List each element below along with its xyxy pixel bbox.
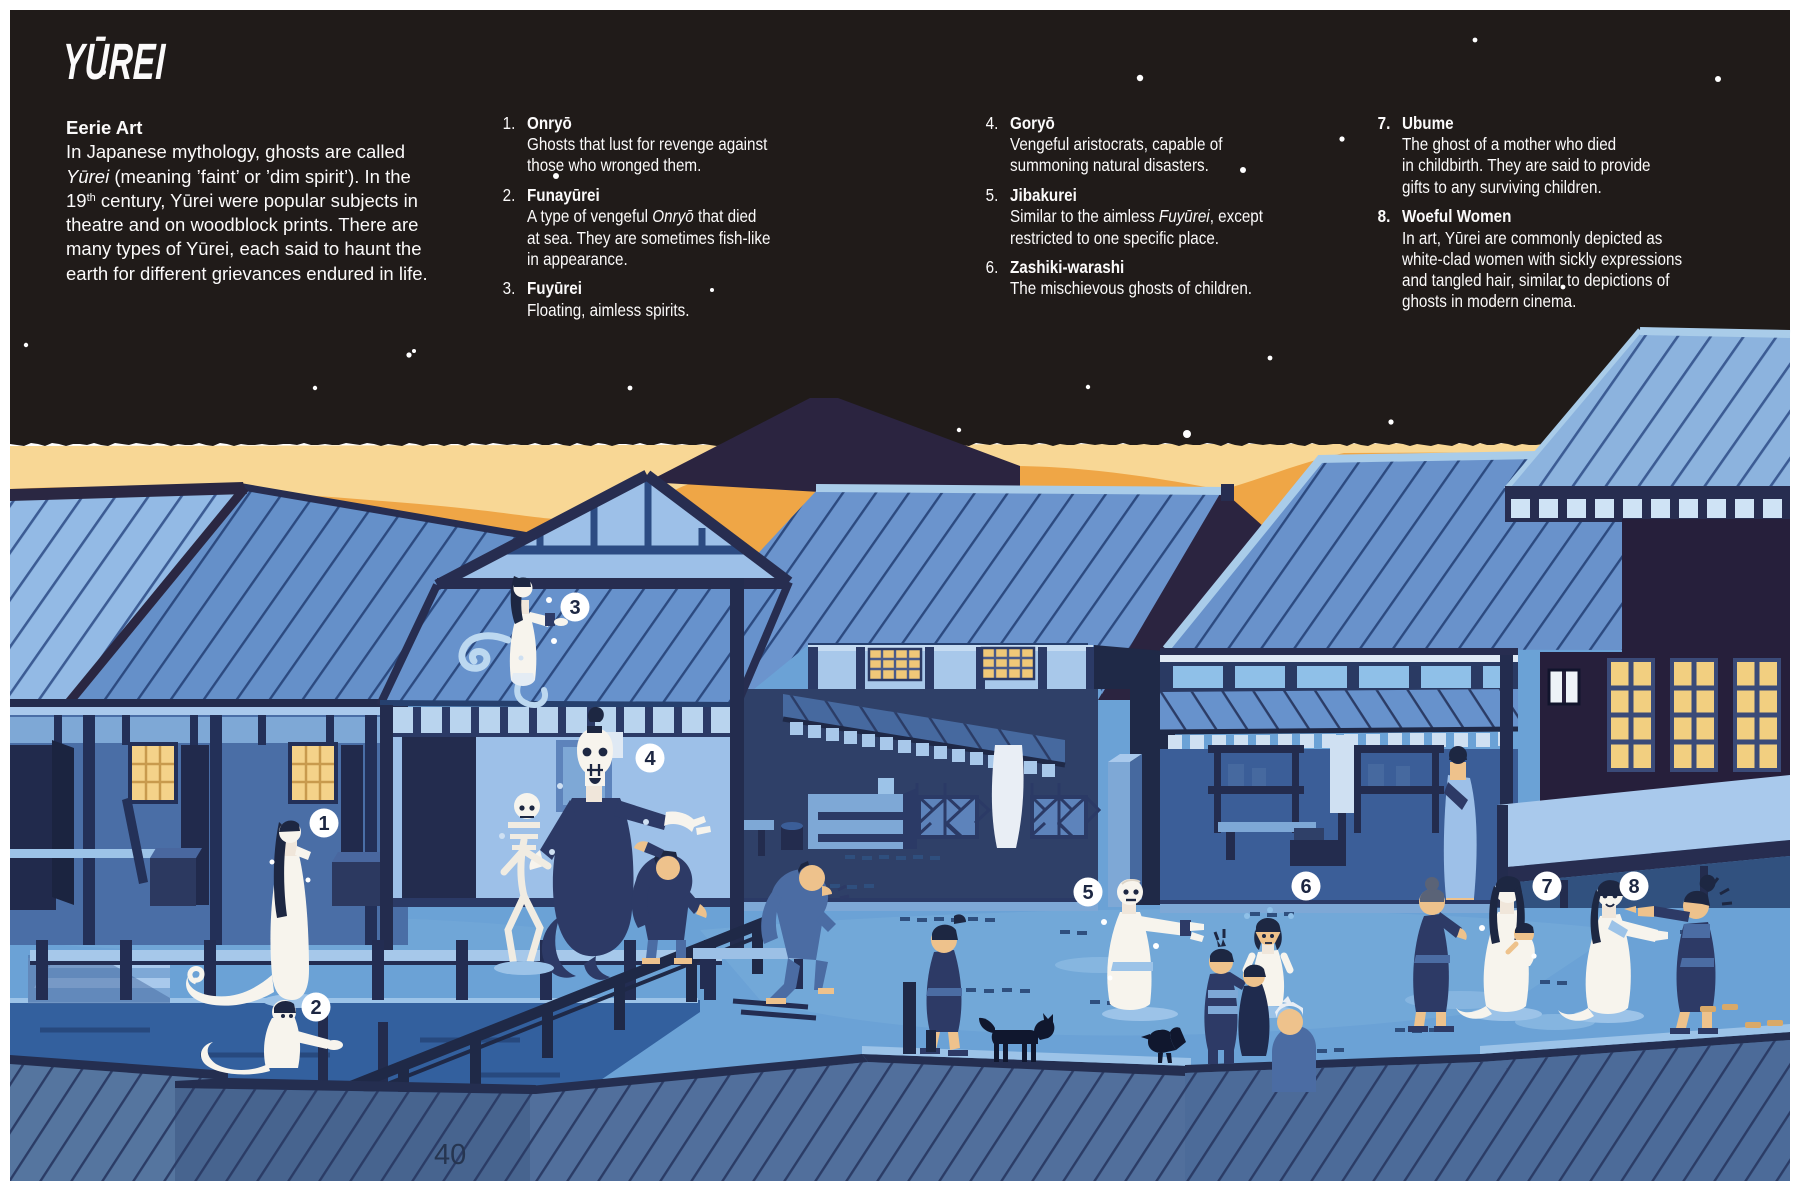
svg-text:7: 7 [1541,876,1552,898]
svg-text:6: 6 [1300,876,1311,898]
svg-text:1: 1 [318,813,329,835]
svg-text:5: 5 [1082,882,1093,904]
svg-text:8: 8 [1628,876,1639,898]
svg-text:3: 3 [569,597,580,619]
svg-text:2: 2 [310,997,321,1019]
svg-text:40: 40 [434,1139,466,1171]
svg-text:4: 4 [644,748,656,770]
